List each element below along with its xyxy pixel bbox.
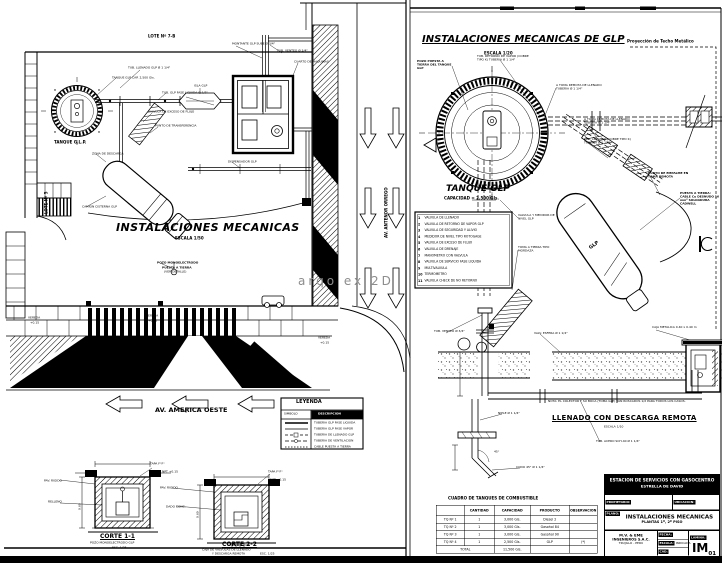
cell: 1	[464, 516, 494, 524]
sheet-code-text: IM	[692, 541, 708, 555]
corte2-l1: NPT +0.15	[270, 478, 286, 482]
ann-fase: TUB. GLP FASE LIQUIDA Ø 1/2"	[162, 91, 208, 95]
cell: 1	[464, 523, 494, 531]
cell: 3,000 Gls.	[494, 531, 530, 539]
tank-table-title: CUADRO DE TANQUES DE COMBUSTIBLE	[448, 496, 538, 501]
legend-text: MEDIDOR DE NIVEL TIPO ROTOGAGE	[425, 235, 482, 239]
street-label-orrego: AV. ANTENOR ORREGO	[384, 187, 389, 238]
pozo-note-2: PUESTA A TIERRA	[162, 266, 192, 270]
cell: 2,500 Gls.	[494, 538, 530, 546]
cad-drawing-canvas: LOTE Nº 7-B LOTE Nº 5 TANQUE G.L.P. TANQ…	[0, 0, 722, 566]
table-row: TQ Nº 1 1 3,000 Gls. Diesel 2	[436, 516, 597, 524]
ann-exceso: VALVULA DE EXCESO DE FLUJO	[148, 110, 194, 114]
corte2-l2: TAPA F°F°	[268, 470, 283, 474]
tank-label-left: TANQUE G.L.P.	[54, 140, 86, 145]
owner-label: PROPIETARIO:	[606, 500, 632, 505]
ann-cuarto: CUARTO DE MAQUINAS	[294, 60, 329, 64]
corte1-sub: POZO MONOELECTRODO GLP	[90, 541, 134, 545]
ann-isla: ISLA GLP	[194, 84, 207, 88]
fill-title: LLENADO CON DESCARGA REMOTA	[552, 414, 697, 422]
cell: TQ Nº 1	[436, 516, 464, 524]
leyenda-row-1: TUBERIA GLP FASE VAPOR	[314, 427, 353, 431]
corte1-l1: NPT +0.15	[162, 470, 178, 474]
ann-tanque: TANQUE GLP CAP. 2,500 Gls.	[112, 76, 155, 80]
right-plan-title: INSTALACIONES MECANICAS DE GLP	[422, 34, 625, 46]
legend-text: VALVULA DE RETORNO DE VAPOR GLP	[425, 222, 484, 226]
location-cell: UBICACION:	[673, 495, 719, 510]
tank-title-right: TANQUE GLP	[446, 184, 510, 195]
titleblock-project: ESTACION DE SERVICIOS CON GASOCENTRO EST…	[605, 475, 719, 495]
vereda-level-2: +0.15	[148, 319, 157, 323]
left-plan-scale: ESCALA 1/50	[175, 236, 204, 241]
corte1-l3: PAV. RIGIDO	[44, 479, 62, 483]
firm-cell: M.V. & EME INGENIEROS S.A.C. TRUJILLO - …	[605, 531, 658, 556]
ann-llenado: TUB. LLENADO GLP Ø 1 1/4"	[128, 66, 170, 70]
cell: 1	[464, 531, 494, 539]
legend-text: VALVULA DE SERVICIO FASE LIQUIDA	[425, 260, 482, 264]
ann-dispensador: DISPENSADOR GLP	[228, 160, 257, 164]
vereda-label-1: VEREDA	[28, 316, 40, 320]
leyenda-row-4: CABLE PUESTA A TIERRA	[314, 445, 351, 449]
tank-table: CANTIDAD CAPACIDAD PRODUCTO OBSERVACION …	[436, 505, 598, 554]
table-row: TQ Nº 3 1 3,000 Gls. Gasohol 90	[436, 531, 597, 539]
watermark: arqo ex 2D	[298, 274, 394, 288]
legend-text: VALVULA DE DRENAJE	[425, 247, 459, 251]
corte-1-1-detail	[60, 461, 171, 532]
roof-projection-note: Proyección de Techo Metálico	[627, 39, 694, 44]
legend-text: VALVULA DE EXCESO DE FLUJO	[425, 241, 473, 245]
legend-text: VALVULA CHECK DE NO RETORNO	[425, 279, 478, 283]
plan-label: PLANO:	[606, 512, 621, 517]
cell: 11,500 Gls.	[494, 546, 530, 554]
cell: 1	[464, 538, 494, 546]
legend-text: MANOMETRO CON VALVULA	[425, 254, 468, 258]
cell	[530, 546, 569, 554]
vereda-label-3: VEREDA	[318, 336, 330, 340]
table-row: TQ Nº 2 1 3,000 Gls. Gasohol 84	[436, 523, 597, 531]
fill-valv-label: VALV. ESFERA Ø 1 1/4"	[534, 332, 574, 335]
cell: 3,000 Gls.	[494, 523, 530, 531]
sheet-code: IM01	[689, 541, 719, 561]
ann-toma-remota-2: A TOMA REMOTA DE LLENADO TUBERIA Ø 1 1/4…	[584, 118, 634, 125]
meta-cell: FECHA: ESCALA:INDICADA CAD:	[658, 531, 689, 556]
table-row: TQ Nº 4 1 2,500 Gls. GLP (*)	[436, 538, 597, 546]
sheet-number: 01	[708, 550, 716, 557]
legend-text: MULTIVALVULA	[425, 266, 448, 270]
ann-puesta-tierra: PUESTA A TIERRA: CABLE Cu DESNUDO 16 mm²…	[680, 192, 720, 206]
corte2-l4: DADO CONC.	[166, 505, 186, 509]
cell: PRODUCTO	[530, 505, 569, 516]
leyenda-title: LEYENDA	[296, 399, 322, 405]
cad-row: CAD:	[658, 548, 688, 556]
fill-niple-label: NIPLE Ø 1 1/4"	[498, 412, 528, 415]
lot-label-top: LOTE Nº 7-B	[148, 34, 175, 39]
left-black-band	[313, 25, 338, 306]
cell: CAPACIDAD	[494, 505, 530, 516]
legend-item: 11VALVULA CHECK DE NO RETORNO	[418, 279, 511, 285]
cell	[436, 505, 464, 516]
leyenda-row-3: TUBERIA DE VENTILACION	[314, 439, 353, 443]
right-legend-list: 1VALVULA DE LLENADO 2VALVULA DE RETORNO …	[418, 216, 604, 355]
ann-transfer: PUNTO DE TRANSFERENCIA	[155, 124, 196, 128]
cell: (*)	[569, 538, 597, 546]
cell	[569, 546, 597, 554]
ann-empalme: PUNTO DE EMPALME EN TOMA REMOTA	[648, 172, 693, 179]
project-name-2: ESTRELLA DE DAVID	[605, 484, 719, 490]
ann-toma-remota-1: A TOMA REMOTA DE LLENADO TUBERIA Ø 1 1/4…	[556, 84, 606, 91]
ann-cisterna: CAMION CISTERNA GLP	[82, 205, 117, 209]
ann-montante: MONTANTE GLP SUBE Ø 3/4"	[232, 42, 275, 46]
leyenda-col-descripcion: DESCRIPCION	[318, 412, 341, 416]
corte1-dim: 0.60	[78, 503, 82, 510]
date-row: FECHA:	[658, 531, 688, 539]
vereda-level-3: +0.15	[320, 341, 329, 345]
corte2-dim: 0.60	[196, 511, 200, 518]
cell: Diesel 2	[530, 516, 569, 524]
leyenda-col-simbolo: SIMBOLO	[284, 412, 298, 416]
fill-nota: NOTA: EL COLECTOR Y SU BOCA (TOMA GLP) V…	[548, 400, 693, 403]
corte2-scale: ESC. 1/25	[260, 552, 275, 556]
plan-title-cell: PLANO: INSTALACIONES MECANICAS PLANTAS 1…	[605, 511, 719, 531]
left-plan-title: INSTALACIONES MECANICAS	[116, 221, 300, 234]
fill-scale: ESCALA 1/10	[604, 425, 623, 429]
tank-capacity: CAPACIDAD = 2,500 Gls.	[444, 196, 499, 201]
cell	[569, 523, 597, 531]
ann-descarga: ZONA DE DESCARGA	[92, 152, 124, 156]
sheet-cell: LAMINA: IM01	[689, 531, 719, 556]
location-label: UBICACION:	[674, 500, 696, 505]
leyenda-row-0: TUBERIA GLP FASE LIQUIDA	[314, 421, 355, 425]
fill-tub-label: TUB. ACERO SCH-40 Ø 1 1/4"	[596, 440, 646, 443]
title-block: ESTACION DE SERVICIOS CON GASOCENTRO EST…	[604, 474, 720, 557]
corte2-l3: PAV. RIGIDO	[160, 486, 178, 490]
ann-pozo-tierra: POZO PUESTA A TIERRA DEL TANQUE GLP	[417, 60, 453, 70]
cell: TQ Nº 3	[436, 531, 464, 539]
corte1-l2: TAPA F°F°	[150, 462, 165, 466]
scale-label: ESCALA:	[659, 541, 675, 546]
cell: TOTAL	[436, 546, 494, 554]
date-label: FECHA:	[659, 533, 673, 538]
cad-label: CAD:	[659, 549, 669, 554]
vereda-level-1: +0.15	[30, 321, 39, 325]
cell	[569, 531, 597, 539]
corte1-l4: RELLENO	[48, 500, 62, 504]
corte1-title: CORTE 1-1	[100, 533, 135, 540]
glp-tank-plan-left	[41, 77, 113, 145]
table-total-row: TOTAL 11,500 Gls.	[436, 546, 597, 554]
legend-text: VALVULA DE SEGURIDAD Y ALIVIO	[425, 229, 478, 233]
cell: CANTIDAD	[464, 505, 494, 516]
fill-codo-label: CODO 45° Ø 1 1/4"	[516, 466, 556, 469]
scale-row: ESCALA:INDICADA	[658, 539, 688, 547]
table-header-row: CANTIDAD CAPACIDAD PRODUCTO OBSERVACION	[436, 505, 597, 516]
ann-retorno-vapor: TUB. RETORNO DE VAPOR (COBRE TIPO K) TUB…	[477, 55, 532, 62]
pozo-note-3: (VER DETALLE)	[164, 270, 186, 274]
corte2-sub2: Y DESCARGA REMOTA	[212, 552, 245, 556]
leyenda-row-2: TUBERIA DE LLENADO GLP	[314, 433, 354, 437]
sheet-label: LAMINA:	[690, 536, 706, 541]
plan-subtitle: PLANTAS 1º, 2º PISO	[606, 520, 719, 524]
cell	[569, 516, 597, 524]
ann-venteo: TUB. VENTEO Ø 3/4"	[277, 49, 308, 53]
cell: Gasohol 84	[530, 523, 569, 531]
firm-line-3: TRUJILLO - PERU	[605, 542, 657, 546]
lot-label-left: LOTE Nº 5	[44, 191, 49, 214]
cell: TQ Nº 4	[436, 538, 464, 546]
legend-text: VALVULA DE LLENADO	[425, 216, 460, 220]
pozo-note-1: POZO MONOELECTRODO	[157, 261, 198, 265]
fill-angle-label: 45°	[494, 450, 499, 454]
legend-text: TERMOMETRO	[425, 273, 447, 277]
vereda-label-2: VEREDA	[146, 314, 158, 318]
fill-caja-label: CAJA METALICA 0.40 x 0.40 m	[652, 326, 697, 329]
cell: GLP	[530, 538, 569, 546]
corte1-scale: ESC. 1/25	[112, 546, 127, 550]
cell: 3,000 Gls.	[494, 516, 530, 524]
corte-2-2-detail	[172, 474, 280, 547]
street-label-america: AV. AMERICA OESTE	[155, 407, 227, 415]
right-street	[357, 3, 404, 308]
fill-venteo-label: TUB. VENTEO Ø 3/4"	[434, 330, 469, 333]
cell: OBSERVACION	[569, 505, 597, 516]
ann-tub-llenado: TUB. LLENADO (COBRE TIPO K) TUBERIA Ø 1 …	[584, 138, 634, 145]
cell: Gasohol 90	[530, 531, 569, 539]
cell: TQ Nº 2	[436, 523, 464, 531]
owner-cell: PROPIETARIO:	[605, 495, 673, 510]
